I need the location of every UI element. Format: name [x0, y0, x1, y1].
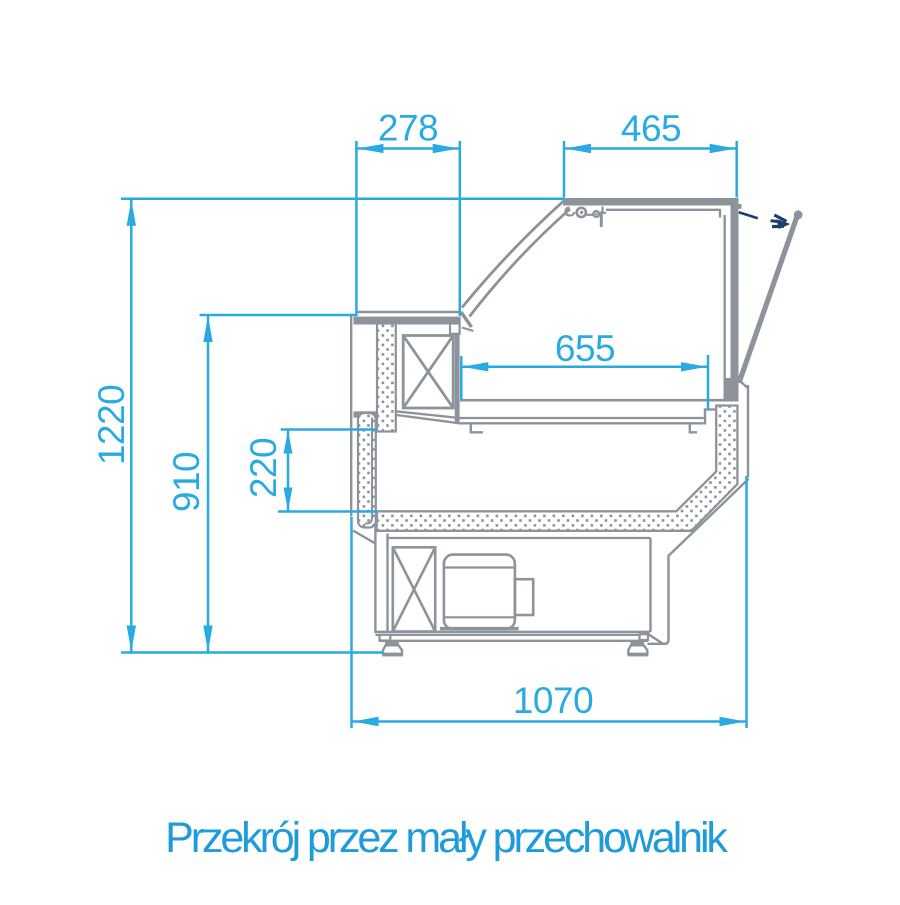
svg-text:910: 910: [166, 452, 207, 512]
svg-text:1070: 1070: [513, 680, 593, 721]
svg-text:1220: 1220: [91, 385, 132, 465]
svg-text:220: 220: [243, 438, 284, 498]
svg-text:Przekrój przez mały przechowal: Przekrój przez mały przechowalnik: [165, 814, 728, 862]
svg-text:278: 278: [378, 108, 438, 149]
svg-text:655: 655: [555, 328, 615, 369]
svg-text:465: 465: [621, 108, 681, 149]
